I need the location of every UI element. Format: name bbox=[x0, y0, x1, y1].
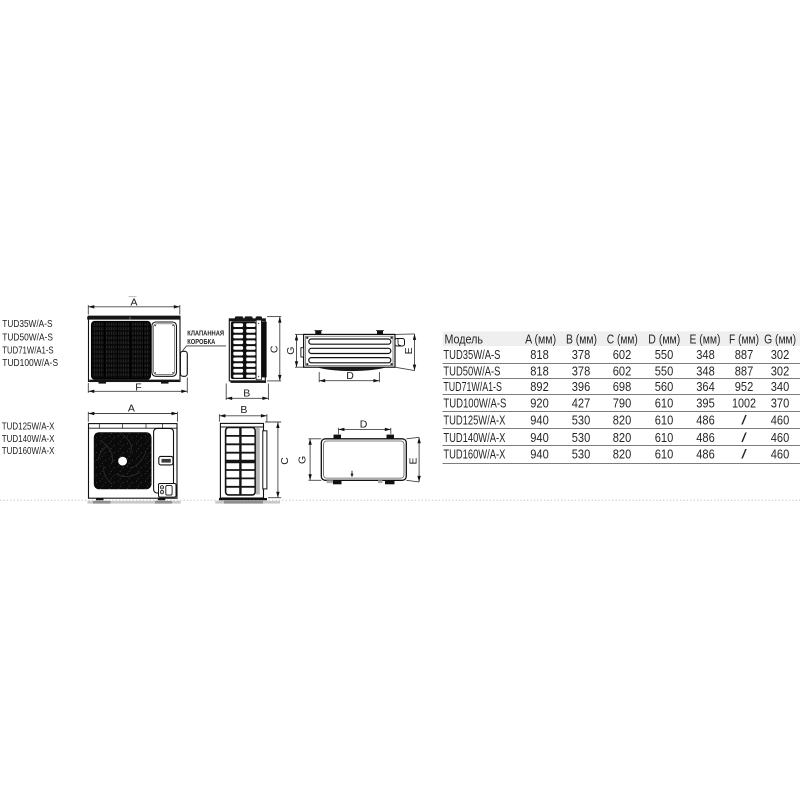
svg-text:/: / bbox=[741, 430, 747, 445]
svg-text:698: 698 bbox=[613, 379, 632, 394]
svg-text:818: 818 bbox=[530, 363, 549, 378]
svg-text:892: 892 bbox=[530, 379, 549, 394]
svg-text:486: 486 bbox=[696, 430, 715, 445]
svg-text:602: 602 bbox=[613, 347, 632, 362]
svg-text:Модель: Модель bbox=[445, 332, 484, 347]
svg-text:427: 427 bbox=[572, 395, 591, 410]
svg-text:940: 940 bbox=[530, 430, 549, 445]
svg-text:TUD160W/A-X: TUD160W/A-X bbox=[443, 447, 505, 462]
svg-text:550: 550 bbox=[655, 363, 674, 378]
svg-text:/: / bbox=[741, 447, 747, 462]
svg-text:378: 378 bbox=[572, 347, 591, 362]
svg-text:TUD140W/A-X: TUD140W/A-X bbox=[443, 430, 505, 445]
svg-text:486: 486 bbox=[696, 447, 715, 462]
svg-text:TUD100W/A-S: TUD100W/A-S bbox=[2, 357, 58, 369]
svg-text:TUD50W/A-S: TUD50W/A-S bbox=[2, 331, 53, 343]
svg-text:370: 370 bbox=[771, 395, 790, 410]
svg-text:610: 610 bbox=[655, 430, 674, 445]
svg-text:КОРОБКА: КОРОБКА bbox=[187, 337, 215, 346]
svg-text:378: 378 bbox=[572, 363, 591, 378]
svg-text:A: A bbox=[130, 297, 137, 309]
svg-text:TUD125W/A-X: TUD125W/A-X bbox=[443, 413, 505, 428]
svg-text:B (мм): B (мм) bbox=[566, 332, 597, 347]
svg-text:460: 460 bbox=[771, 447, 790, 462]
svg-text:TUD160W/A-X: TUD160W/A-X bbox=[2, 445, 55, 457]
svg-text:530: 530 bbox=[572, 430, 591, 445]
svg-text:790: 790 bbox=[613, 395, 632, 410]
svg-text:952: 952 bbox=[735, 379, 754, 394]
svg-text:B: B bbox=[243, 387, 250, 399]
svg-text:460: 460 bbox=[771, 430, 790, 445]
svg-text:920: 920 bbox=[530, 395, 549, 410]
svg-text:D (мм): D (мм) bbox=[648, 332, 680, 347]
svg-text:TUD71W/A1-S: TUD71W/A1-S bbox=[443, 379, 502, 394]
svg-text:D: D bbox=[360, 418, 368, 430]
svg-text:TUD35W/A-S: TUD35W/A-S bbox=[2, 318, 52, 330]
svg-text:C: C bbox=[279, 457, 291, 465]
svg-text:460: 460 bbox=[771, 413, 790, 428]
svg-text:D: D bbox=[346, 370, 354, 382]
svg-text:486: 486 bbox=[696, 413, 715, 428]
svg-text:B: B bbox=[240, 404, 247, 416]
svg-text:F (мм): F (мм) bbox=[729, 332, 759, 347]
svg-text:A: A bbox=[128, 402, 135, 414]
svg-text:887: 887 bbox=[735, 347, 754, 362]
svg-text:940: 940 bbox=[530, 413, 549, 428]
svg-text:820: 820 bbox=[613, 430, 632, 445]
svg-text:TUD71W/A1-S: TUD71W/A1-S bbox=[2, 345, 53, 357]
svg-text:610: 610 bbox=[655, 447, 674, 462]
svg-text:G (мм): G (мм) bbox=[764, 332, 796, 347]
svg-text:602: 602 bbox=[613, 363, 632, 378]
svg-text:E: E bbox=[403, 347, 415, 354]
svg-text:C: C bbox=[269, 345, 281, 353]
svg-text:TUD35W/A-S: TUD35W/A-S bbox=[443, 347, 500, 362]
svg-text:A (мм): A (мм) bbox=[525, 332, 556, 347]
svg-text:610: 610 bbox=[655, 395, 674, 410]
svg-text:348: 348 bbox=[696, 363, 715, 378]
svg-text:530: 530 bbox=[572, 413, 591, 428]
svg-text:TUD140W/A-X: TUD140W/A-X bbox=[2, 433, 55, 445]
svg-text:C (мм): C (мм) bbox=[607, 332, 638, 347]
svg-text:395: 395 bbox=[696, 395, 715, 410]
svg-text:348: 348 bbox=[696, 347, 715, 362]
svg-text:TUD50W/A-S: TUD50W/A-S bbox=[443, 363, 500, 378]
svg-text:G: G bbox=[285, 347, 297, 355]
svg-text:302: 302 bbox=[771, 363, 790, 378]
svg-text:F: F bbox=[135, 382, 141, 394]
svg-text:340: 340 bbox=[771, 379, 790, 394]
svg-text:TUD100W/A-S: TUD100W/A-S bbox=[443, 395, 506, 410]
svg-text:364: 364 bbox=[696, 379, 715, 394]
svg-text:/: / bbox=[741, 413, 747, 428]
svg-text:818: 818 bbox=[530, 347, 549, 362]
svg-text:820: 820 bbox=[613, 413, 632, 428]
svg-text:550: 550 bbox=[655, 347, 674, 362]
svg-text:1002: 1002 bbox=[732, 395, 756, 410]
svg-text:E (мм): E (мм) bbox=[690, 332, 721, 347]
svg-text:820: 820 bbox=[613, 447, 632, 462]
svg-text:TUD125W/A-X: TUD125W/A-X bbox=[2, 421, 55, 433]
svg-text:G: G bbox=[297, 456, 309, 464]
svg-text:940: 940 bbox=[530, 447, 549, 462]
svg-text:E: E bbox=[407, 457, 419, 464]
svg-text:396: 396 bbox=[572, 379, 591, 394]
svg-text:560: 560 bbox=[655, 379, 674, 394]
svg-text:610: 610 bbox=[655, 413, 674, 428]
svg-text:887: 887 bbox=[735, 363, 754, 378]
svg-text:302: 302 bbox=[771, 347, 790, 362]
svg-text:530: 530 bbox=[572, 447, 591, 462]
